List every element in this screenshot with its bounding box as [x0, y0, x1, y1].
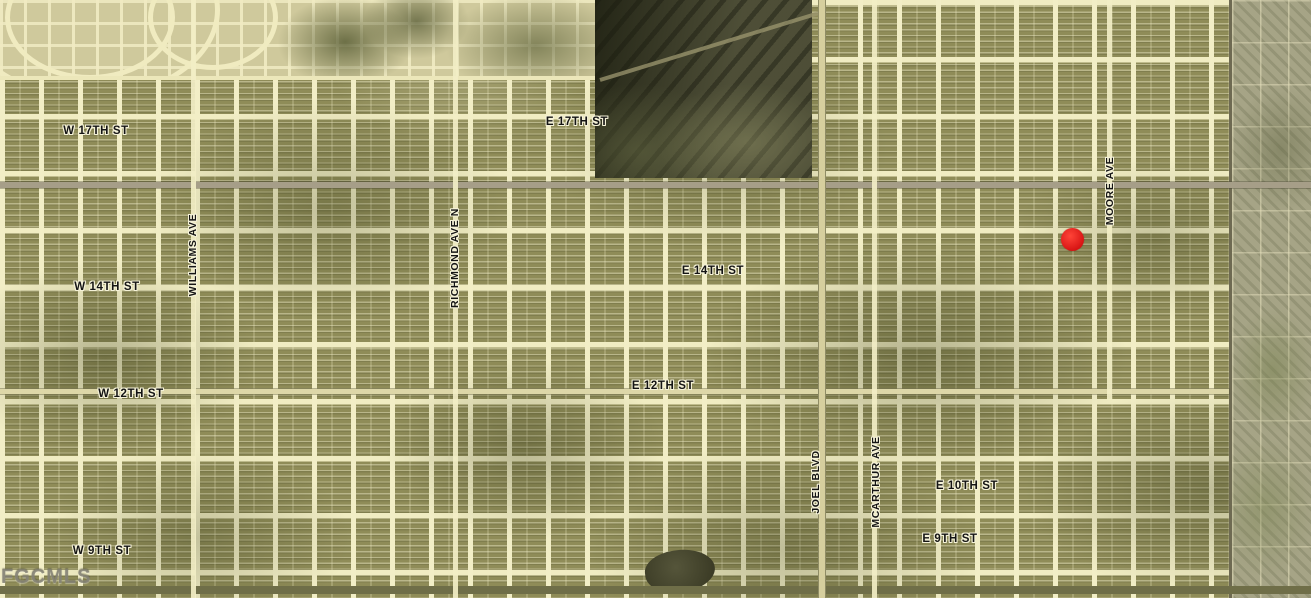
street-label-w-9th-st: W 9TH ST: [73, 545, 131, 557]
rural-region: [1229, 0, 1311, 598]
street-label-w-14th-st: W 14TH ST: [74, 281, 139, 293]
street-label-e-14th-st: E 14TH ST: [682, 265, 744, 277]
road-williams-ave: [191, 0, 196, 598]
street-label-mcarthur-ave: MCARTHUR AVE: [870, 436, 882, 527]
street-label-e-9th-st: E 9TH ST: [922, 533, 977, 545]
street-label-richmond-ave: RICHMOND AVE N: [449, 208, 461, 308]
map-canvas[interactable]: W 17TH ST E 17TH ST W 14TH ST E 14TH ST …: [0, 0, 1311, 598]
curvy-suburb-region: [0, 0, 595, 80]
street-label-w-12th-st: W 12TH ST: [98, 388, 163, 400]
mls-watermark: FGCMLS: [1, 566, 91, 589]
street-label-joel-blvd: JOEL BLVD: [810, 450, 822, 513]
major-road-horizontal-south: [0, 586, 1311, 594]
property-location-marker-icon[interactable]: [1061, 228, 1084, 251]
street-label-e-17th-st: E 17TH ST: [546, 116, 608, 128]
street-label-moore-ave: MOORE AVE: [1104, 157, 1116, 225]
street-label-e-10th-st: E 10TH ST: [936, 480, 998, 492]
street-label-w-17th-st: W 17TH ST: [63, 125, 128, 137]
road-12th-st: [0, 389, 1229, 394]
street-label-williams-ave: WILLIAMS AVE: [187, 214, 199, 296]
street-label-e-12th-st: E 12TH ST: [632, 380, 694, 392]
